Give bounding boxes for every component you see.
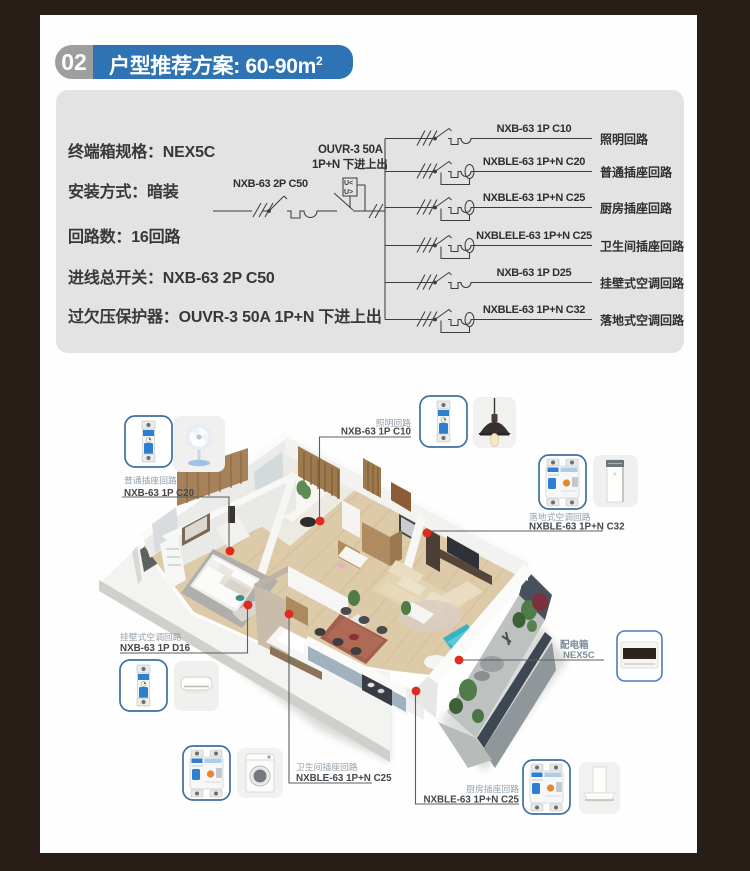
svg-text:NXBLE-63 1P+N C25: NXBLE-63 1P+N C25 (423, 795, 519, 806)
svg-text:U<: U< (344, 180, 353, 187)
svg-text:NXBLE-63 1P+N C32: NXBLE-63 1P+N C32 (483, 304, 585, 316)
svg-text:挂壁式空调回路: 挂壁式空调回路 (600, 276, 685, 291)
svg-text:NEX5C: NEX5C (563, 650, 595, 661)
svg-text:NXBLE-63 1P+N C32: NXBLE-63 1P+N C32 (529, 522, 625, 533)
svg-text:NXB-63 1P C20: NXB-63 1P C20 (124, 488, 195, 499)
svg-text:厨房插座回路: 厨房插座回路 (600, 201, 673, 216)
svg-text:U>: U> (344, 189, 353, 196)
svg-text:1P+N 下进上出: 1P+N 下进上出 (312, 157, 388, 171)
svg-text:卫生间插座回路: 卫生间插座回路 (296, 761, 358, 772)
svg-text:NXBLE-63 1P+N C20: NXBLE-63 1P+N C20 (483, 156, 585, 168)
svg-text:厨房插座回路: 厨房插座回路 (466, 783, 519, 794)
svg-text:照明回路: 照明回路 (600, 132, 649, 147)
svg-text:挂壁式空调回路: 挂壁式空调回路 (120, 631, 182, 642)
svg-text:NXB-63 1P D25: NXB-63 1P D25 (497, 267, 572, 279)
svg-text:NXBLE-63 1P+N C25: NXBLE-63 1P+N C25 (483, 192, 585, 204)
svg-text:落地式空调回路: 落地式空调回路 (529, 511, 591, 522)
svg-text:OUVR-3 50A: OUVR-3 50A (318, 144, 383, 156)
svg-text:NXBLELE-63 1P+N C25: NXBLELE-63 1P+N C25 (476, 230, 592, 242)
svg-text:卫生间插座回路: 卫生间插座回路 (600, 239, 685, 254)
svg-text:NXB-63 1P C10: NXB-63 1P C10 (341, 427, 412, 438)
svg-text:NXB-63 1P C10: NXB-63 1P C10 (497, 123, 572, 135)
svg-text:NXBLE-63 1P+N C25: NXBLE-63 1P+N C25 (296, 773, 392, 784)
svg-text:NXB-63 2P C50: NXB-63 2P C50 (233, 178, 308, 190)
svg-text:落地式空调回路: 落地式空调回路 (600, 313, 685, 328)
svg-text:NXB-63 1P D16: NXB-63 1P D16 (120, 643, 191, 654)
svg-text:普通插座回路: 普通插座回路 (124, 475, 177, 486)
svg-text:普通插座回路: 普通插座回路 (600, 165, 673, 180)
